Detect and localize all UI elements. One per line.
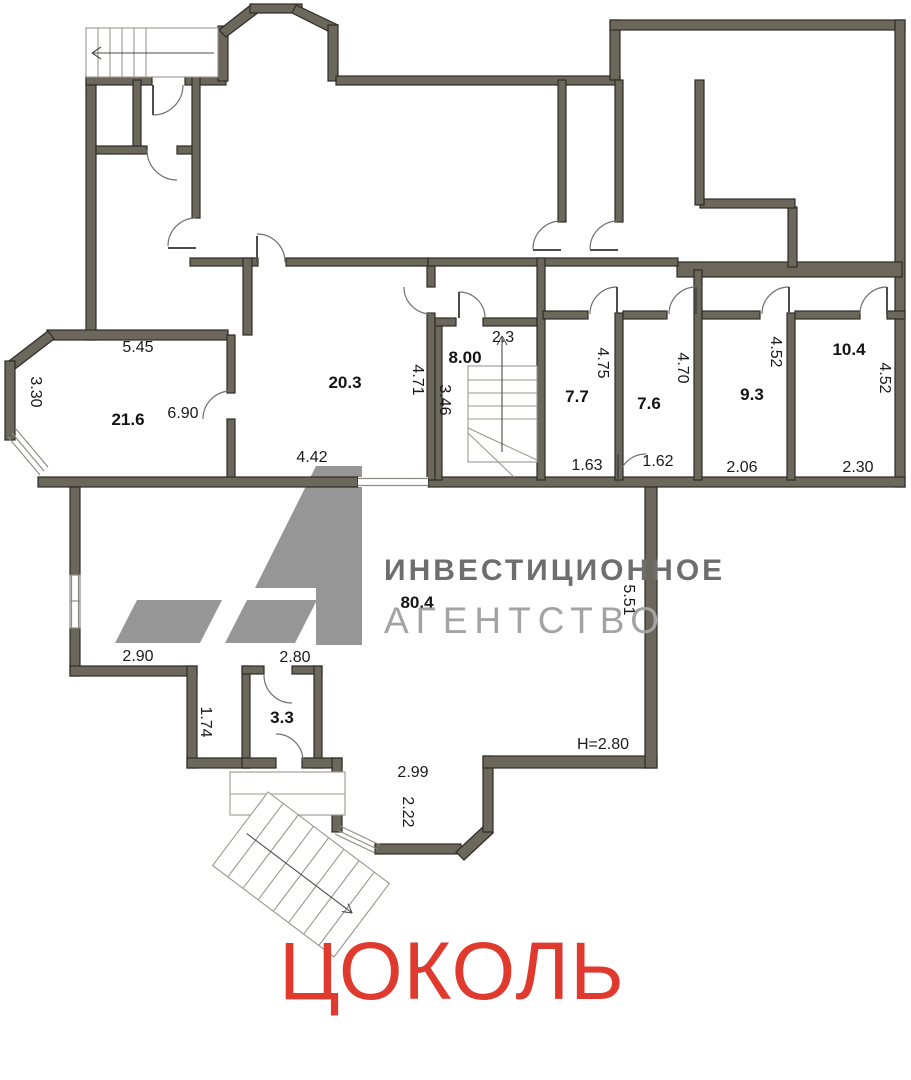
dimension-label: 3.46 [435, 384, 453, 415]
dimension-label: 5.45 [122, 339, 153, 357]
watermark-brand: ИНВЕСТИЦИОННОЕ АГЕНТСТВО [384, 556, 725, 639]
room-area-label: 20.3 [328, 373, 361, 393]
dimension-label: 2.22 [398, 796, 416, 827]
room-area-label: 7.7 [565, 387, 589, 407]
floor-plan-page: 21.620.38.007.77.69.310.480.43.35.453.30… [0, 0, 911, 1080]
watermark-brand-line2: АГЕНТСТВО [384, 602, 725, 639]
dimension-label: 4.70 [673, 352, 691, 383]
room-area-label: 10.4 [832, 340, 865, 360]
dimension-label: 1.74 [196, 706, 214, 737]
dimension-label: 3.30 [26, 376, 44, 407]
dimension-label: 2.90 [122, 648, 153, 666]
dimension-label: 2.3 [492, 329, 514, 347]
room-area-label: 7.6 [637, 394, 661, 414]
dimension-label: 4.52 [766, 336, 784, 367]
dimension-label: 1.63 [571, 457, 602, 475]
room-area-label: 9.3 [740, 385, 764, 405]
dimension-label: 4.42 [296, 449, 327, 467]
labels-layer: 21.620.38.007.77.69.310.480.43.35.453.30… [0, 0, 911, 1080]
dimension-label: 4.75 [593, 347, 611, 378]
dimension-label: Н=2.80 [577, 736, 629, 754]
dimension-label: 1.62 [642, 453, 673, 471]
dimension-label: 2.99 [397, 764, 428, 782]
room-area-label: 21.6 [111, 410, 144, 430]
room-area-label: 8.00 [448, 348, 481, 368]
dimension-label: 4.71 [408, 364, 426, 395]
watermark-brand-line1: ИНВЕСТИЦИОННОЕ [384, 556, 725, 586]
dimension-label: 2.30 [842, 459, 873, 477]
floor-title: ЦОКОЛЬ [279, 925, 625, 1019]
dimension-label: 2.80 [279, 649, 310, 667]
dimension-label: 2.06 [726, 459, 757, 477]
dimension-label: 4.52 [875, 362, 893, 393]
room-area-label: 3.3 [270, 708, 294, 728]
dimension-label: 6.90 [167, 405, 198, 423]
